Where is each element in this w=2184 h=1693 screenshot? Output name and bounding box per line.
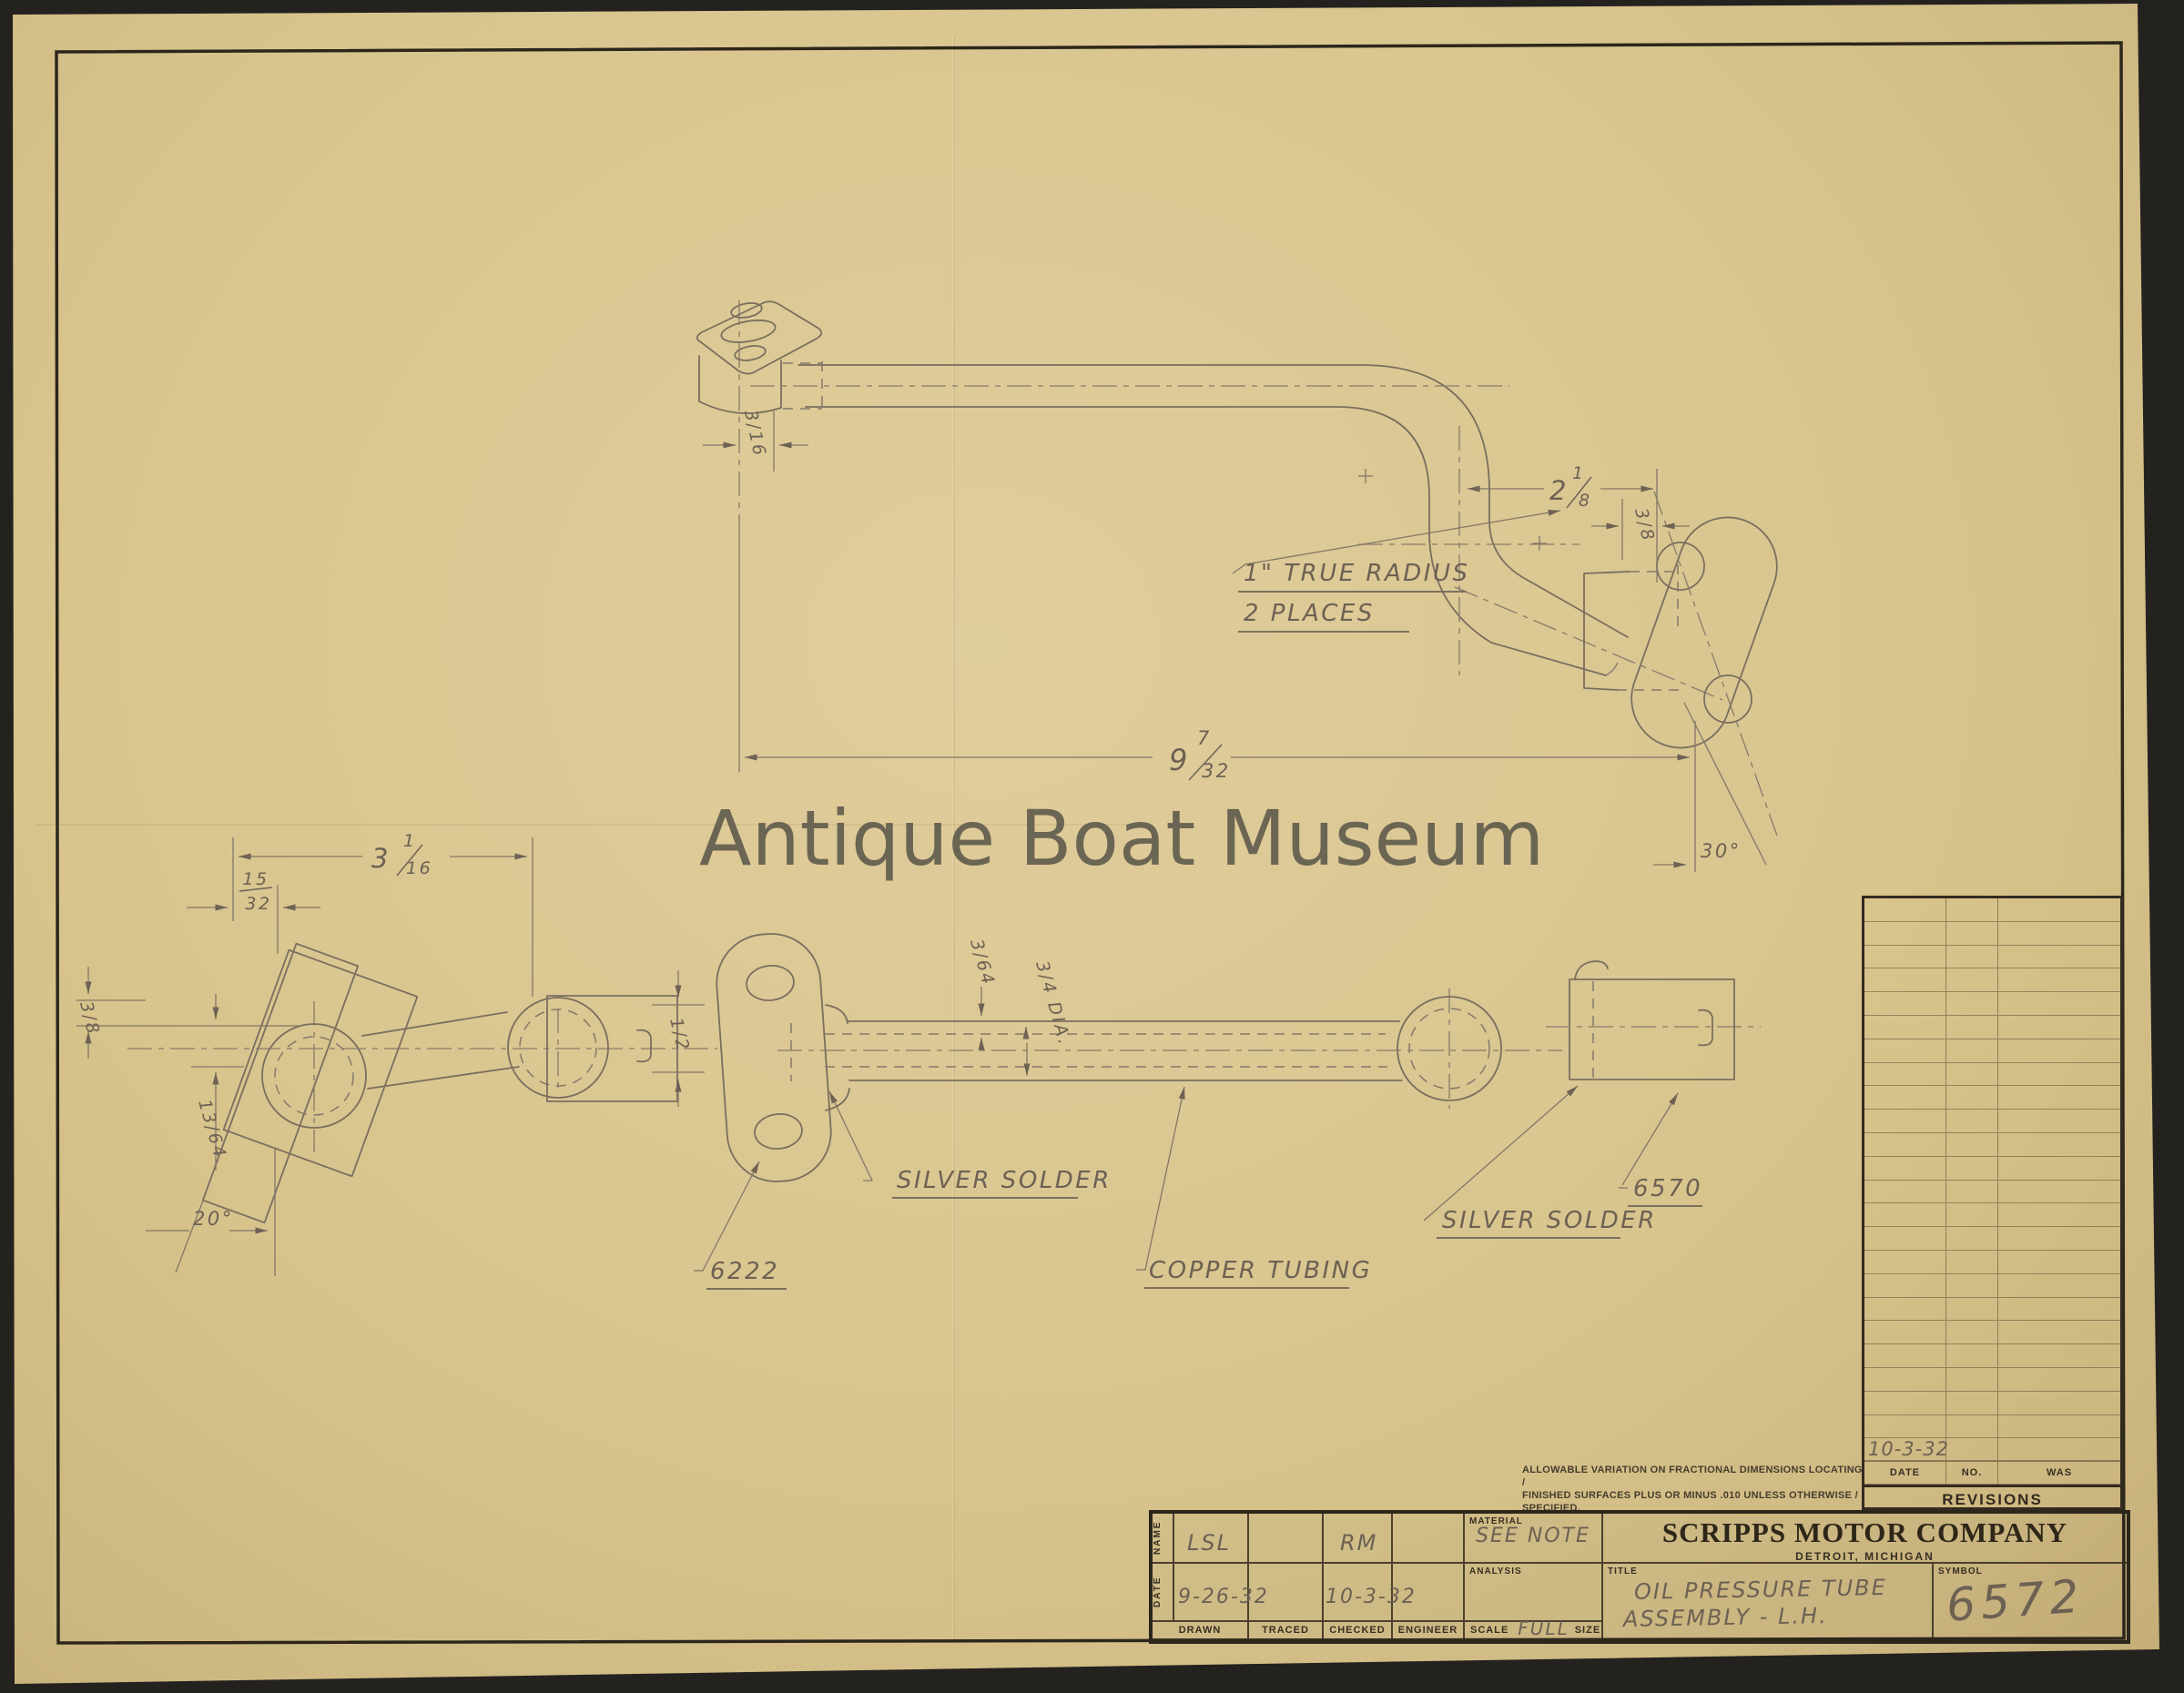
revisions-table: 10-3-32 DATE NO. WAS REVISIONS [1862,896,2123,1510]
drawn-date-cell: 9-26-32 [1174,1564,1249,1622]
dim-flange-angle-text: 20° [193,1208,234,1230]
side-view [714,930,1761,1184]
dim-flange-angle: 20° [146,1208,268,1231]
symbol-value: 6572 [1945,1566,2128,1632]
scale-cell: SCALE FULL SIZE [1465,1622,1603,1640]
dim-overall-num: 7 [1197,727,1212,749]
dim-overall-den: 32 [1202,760,1231,782]
revisions-col-no: NO. [1946,1462,1998,1484]
revision-empty-row [1864,1274,2120,1298]
analysis-label: ANALYSIS [1465,1564,1601,1576]
revision-empty-row [1864,1227,2120,1251]
revision-empty-row [1864,1133,2120,1157]
silver-solder-right-label: SILVER SOLDER [1442,1207,1657,1234]
scanned-blueprint-page: 2 1 8 3/8 3/16 9 7 32 [0,0,2184,1693]
dim-fitting-angle-text: 30° [1701,840,1742,862]
traced-label: TRACED [1249,1622,1324,1640]
drawn-label: DRAWN [1153,1622,1249,1640]
date-row-label: DATE [1153,1564,1173,1620]
dim-2-num: 1 [1572,463,1586,483]
company-cell: SCRIPPS MOTOR COMPANY DETROIT, MICHIGAN [1603,1514,2127,1564]
drawing-title-line1: OIL PRESSURE TUBE [1634,1574,1932,1605]
revision-empty-row [1864,898,2120,922]
dim-2-whole: 2 [1549,475,1569,506]
dim-flange-face-text: 3/8 [1630,506,1659,544]
traced-name-cell [1249,1514,1324,1564]
title-block: NAME DATE LSL RM 9-26-32 10-3-32 MATERIA… [1149,1510,2130,1644]
callout-copper-tubing: COPPER TUBING [1136,1087,1372,1288]
dim-fitting-angle: 30° [1653,703,1766,865]
traced-date-cell [1249,1564,1324,1622]
tolerance-note: ALLOWABLE VARIATION ON FRACTIONAL DIMENS… [1522,1464,1868,1515]
dim-overall-whole: 9 [1169,743,1190,777]
revision-empty-row [1864,946,2120,969]
revision-empty-row [1864,1298,2120,1322]
revision-empty-row [1864,1344,2120,1368]
company-name: SCRIPPS MOTOR COMPANY [1603,1516,2127,1549]
drawing-title-line2: ASSEMBLY - L.H. [1623,1601,1932,1632]
callout-part-6222: 6222 [694,1161,787,1289]
revision-empty-row [1864,922,2120,946]
dim-bend-offset: 2 1 8 [1468,463,1657,583]
revision-empty-row [1864,1181,2120,1204]
revisions-col-was: WAS [1998,1462,2120,1484]
revision-empty-row [1864,992,2120,1016]
size-label: SIZE [1575,1622,1600,1638]
tolerance-note-line1: ALLOWABLE VARIATION ON FRACTIONAL DIMENS… [1522,1464,1868,1489]
dim-tube-dia: 3/4 DIA. [1026,958,1075,1076]
revision-empty-row [1864,1321,2120,1344]
dim-flange-face: 3/8 [1591,506,1690,544]
copper-tubing-label: COPPER TUBING [1149,1257,1372,1284]
true-radius-label-1: 1" TRUE RADIUS [1244,560,1470,587]
revision-empty-row [1864,1203,2120,1227]
material-cell: MATERIAL SEE NOTE [1465,1514,1603,1564]
dim-port-depth: 3/16 [703,408,808,471]
scale-value: FULL [1518,1617,1569,1639]
revisions-heading: REVISIONS [1864,1485,2120,1512]
revision-empty-row [1864,1157,2120,1181]
title-cell: TITLE OIL PRESSURE TUBE ASSEMBLY - L.H. [1603,1564,1934,1640]
dim-side-offset-text: 3/8 [76,999,104,1038]
dim-endwidth-num: 1 [403,831,417,851]
dim-tube-dia-text: 3/4 DIA. [1031,958,1075,1049]
analysis-cell: ANALYSIS [1465,1564,1603,1622]
drawn-name-cell: LSL [1174,1514,1249,1564]
part-6570-label: 6570 [1633,1175,1702,1202]
engineer-date-cell [1393,1564,1465,1622]
symbol-cell: SYMBOL 6572 [1934,1564,2127,1640]
revision-empty-row [1864,1415,2120,1439]
name-row-label-cell: NAME [1153,1514,1174,1564]
company-location: DETROIT, MICHIGAN [1603,1550,2127,1563]
revision-entry-was [1998,1438,2120,1460]
dim-end-width: 3 1 16 [233,831,533,997]
true-radius-label-2: 2 PLACES [1244,600,1375,627]
revision-empty-row [1864,1039,2120,1063]
dim-half-text: 1/2 [665,1016,694,1054]
part-6222-label: 6222 [710,1258,779,1285]
revision-empty-row [1864,968,2120,992]
date-row-label-cell: DATE [1153,1564,1174,1622]
museum-watermark: Antique Boat Museum [699,794,1500,883]
revision-entry-date: 10-3-32 [1864,1438,1946,1460]
dim-endoffset-den: 32 [245,894,271,914]
revision-empty-row [1864,1368,2120,1392]
silver-solder-left-label: SILVER SOLDER [897,1167,1112,1194]
dim-end-offset: 15 32 [187,869,320,914]
revision-empty-row [1864,1016,2120,1039]
dim-half: 1/2 [652,970,705,1107]
tolerance-note-line2: FINISHED SURFACES PLUS OR MINUS .010 UNL… [1522,1489,1868,1502]
revision-empty-row [1864,1063,2120,1087]
checked-label: CHECKED [1324,1622,1393,1640]
callout-silver-solder-right: SILVER SOLDER [1424,1086,1657,1238]
checked-date-cell: 10-3-32 [1324,1564,1393,1622]
callout-true-radius: 1" TRUE RADIUS 2 PLACES [1233,511,1560,632]
dim-2-den: 8 [1579,491,1592,511]
engineer-name-cell [1393,1514,1465,1564]
dim-port-depth-text: 3/16 [740,408,769,459]
dim-endoffset-num: 15 [242,869,269,889]
name-row-label: NAME [1153,1514,1173,1562]
dim-endwidth-whole: 3 [371,843,391,874]
paper-sheet: 2 1 8 3/8 3/16 9 7 32 [0,0,2184,1693]
revision-empty-row [1864,1086,2120,1110]
checked-name-cell: RM [1324,1514,1393,1564]
revision-empty-row [1864,1392,2120,1415]
revisions-col-date: DATE [1864,1462,1946,1484]
scale-label: SCALE [1470,1622,1508,1638]
revision-empty-row [1864,1251,2120,1274]
revision-entry-no [1946,1438,1998,1460]
callout-silver-solder-left: SILVER SOLDER [829,1091,1112,1198]
engineer-label: ENGINEER [1393,1622,1465,1640]
revision-empty-row [1864,1110,2120,1133]
revision-entry-row: 10-3-32 [1864,1438,2120,1461]
dim-wall-text: 3/64 [966,937,999,988]
revisions-header-row: DATE NO. WAS [1864,1461,2120,1485]
dim-endwidth-den: 16 [406,858,432,878]
callout-part-6570: 6570 [1619,1093,1702,1206]
dim-drop: 13/64 [191,994,244,1171]
material-value: SEE NOTE [1465,1525,1601,1547]
revisions-empty-rows [1864,898,2120,1438]
